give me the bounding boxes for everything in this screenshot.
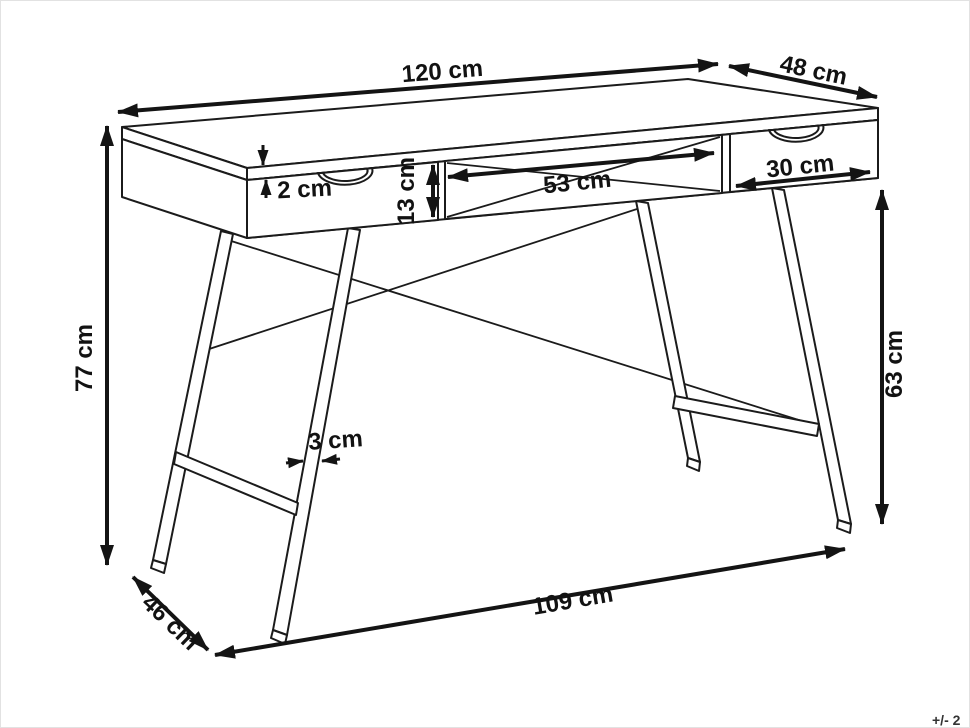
dim-label-top-thickness: 2 cm	[277, 175, 333, 205]
dimension-base-depth: 46 cm	[133, 577, 208, 656]
dim-label-base-width: 109 cm	[530, 580, 615, 620]
dimension-overall-height: 77 cm	[71, 126, 107, 565]
dimension-leg-height: 63 cm	[881, 190, 908, 524]
diagram-canvas: 120 cm 48 cm 77 cm 2 cm 13 cm 53 cm 30 c…	[0, 0, 970, 728]
dim-label-leg-height: 63 cm	[881, 330, 908, 398]
dim-label-overall-height: 77 cm	[71, 324, 98, 392]
dim-arrow-3cm-right	[322, 459, 340, 461]
front-right-leg	[636, 201, 700, 462]
tolerance-footnote: +/- 2	[932, 712, 961, 728]
dim-arrow-109	[215, 549, 845, 655]
dim-label-base-depth: 46 cm	[136, 589, 204, 656]
dimension-leg-thickness: 3 cm	[286, 425, 364, 463]
legs	[151, 188, 851, 644]
dim-label-leg-thickness: 3 cm	[307, 425, 363, 456]
dim-label-niche-height: 13 cm	[393, 157, 420, 225]
dimension-base-width: 109 cm	[215, 549, 845, 655]
dim-arrow-3cm-left	[286, 461, 303, 463]
right-stretcher-bar	[673, 396, 819, 436]
back-left-leg	[153, 231, 233, 564]
back-right-leg	[772, 188, 851, 524]
desk-dimension-diagram: 120 cm 48 cm 77 cm 2 cm 13 cm 53 cm 30 c…	[0, 0, 970, 728]
left-stretcher-bar	[174, 452, 298, 515]
rear-cross-braces	[200, 208, 821, 427]
